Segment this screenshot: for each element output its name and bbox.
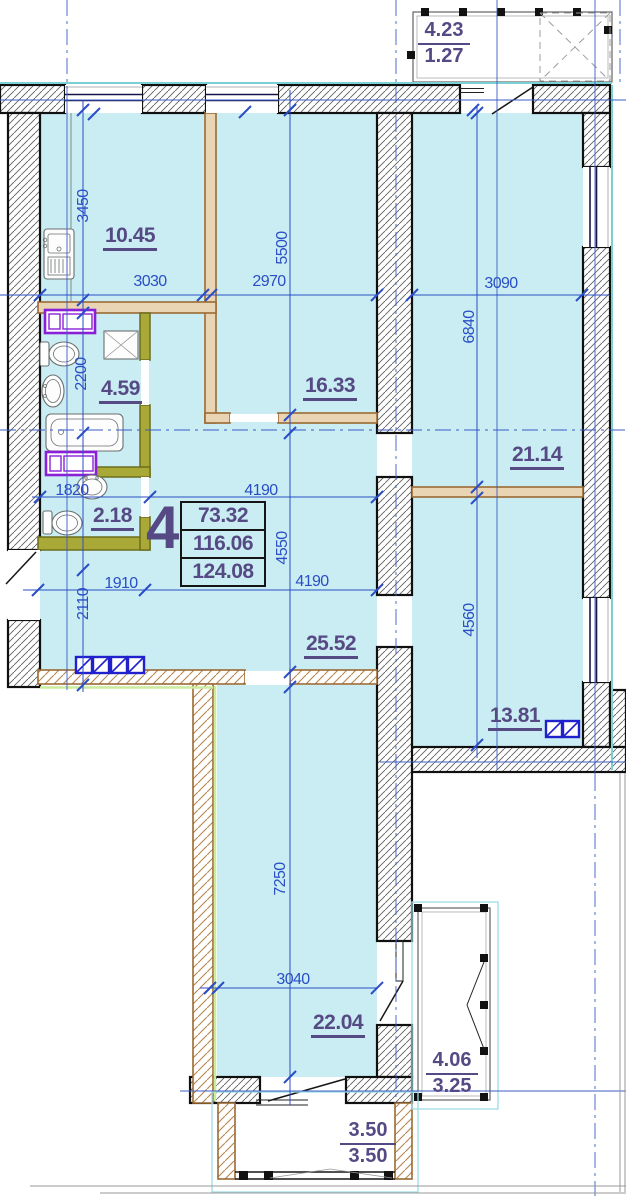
room-fills xyxy=(40,113,583,1077)
balcony-bottom-label: 3.50 3.50 xyxy=(340,1119,396,1168)
room-label-bedroom-bottom: 22.04 xyxy=(311,1011,365,1035)
balcony-top-area-full: 4.23 xyxy=(418,19,470,45)
balcony-right-label: 4.06 3.25 xyxy=(426,1049,478,1098)
dim-1820: 1820 xyxy=(55,482,88,500)
balcony-bottom-area-full: 3.50 xyxy=(340,1119,396,1145)
room-label-hallway: 25.52 xyxy=(304,632,358,656)
dim-2970: 2970 xyxy=(252,273,285,291)
dim-2110: 2110 xyxy=(75,588,93,620)
room-label-bedroom-right: 13.81 xyxy=(488,704,542,728)
balcony-bottom-area-reduced: 3.50 xyxy=(340,1145,396,1168)
room-label-bedroom-top-right: 21.14 xyxy=(510,443,564,467)
dim-4560: 4560 xyxy=(461,603,479,636)
dim-3030: 3030 xyxy=(133,273,166,291)
area-value-2: 116.06 xyxy=(182,531,264,559)
dim-4190-top: 4190 xyxy=(244,482,277,500)
washing-machine xyxy=(45,310,95,333)
balcony-top-area-reduced: 1.27 xyxy=(418,45,470,68)
room-label-bathroom: 4.59 xyxy=(99,377,142,401)
dim-6840: 6840 xyxy=(461,310,479,343)
dim-4550: 4550 xyxy=(274,531,292,564)
toilet-2 xyxy=(43,511,82,535)
dim-4190-bottom: 4190 xyxy=(295,573,328,591)
room-label-wc: 2.18 xyxy=(91,504,134,528)
dim-7250: 7250 xyxy=(272,862,290,895)
area-value-3: 124.08 xyxy=(182,559,264,585)
vent-shaft-x xyxy=(104,331,138,359)
dim-3450: 3450 xyxy=(75,189,93,222)
dim-3040: 3040 xyxy=(276,971,309,989)
dim-1910: 1910 xyxy=(104,575,137,593)
room-label-kitchen: 10.45 xyxy=(103,224,157,248)
balcony-right-area-reduced: 3.25 xyxy=(426,1075,478,1098)
balcony-top-label: 4.23 1.27 xyxy=(418,19,470,68)
apartment-areas-table: 73.32 116.06 124.08 xyxy=(180,501,266,587)
washbasin xyxy=(42,375,64,407)
dim-5500: 5500 xyxy=(274,231,292,264)
area-value-1: 73.32 xyxy=(182,503,264,531)
washing-machine-2 xyxy=(46,452,96,475)
dim-3090: 3090 xyxy=(484,275,517,293)
planned-extension-x-box xyxy=(540,13,610,81)
balcony-right-area-full: 4.06 xyxy=(426,1049,478,1075)
room-label-living-room: 16.33 xyxy=(303,374,357,398)
apartment-number: 4 xyxy=(146,498,179,558)
dim-2200: 2200 xyxy=(73,357,91,390)
floor-plan: 10.45 16.33 4.59 2.18 25.52 21.14 13.81 … xyxy=(0,0,626,1196)
kitchen-sink xyxy=(43,229,74,279)
